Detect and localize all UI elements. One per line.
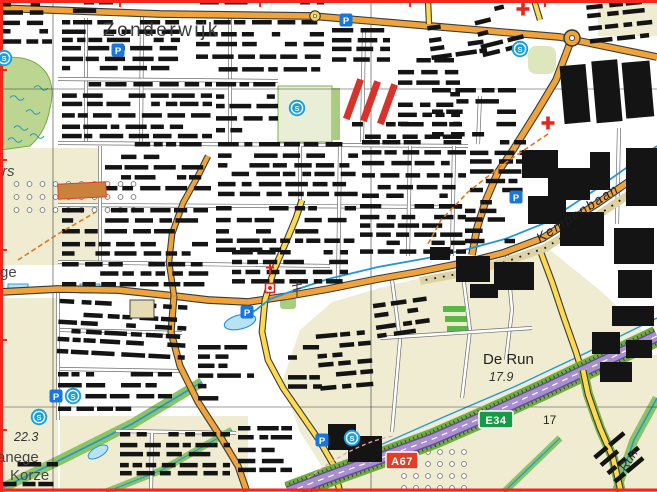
parking-icon: P — [112, 44, 125, 57]
svg-text:S: S — [70, 392, 75, 401]
a-road-number: A67 — [391, 456, 413, 468]
e-road-shield: E34 — [479, 411, 513, 428]
town-label: Zonderwijk — [103, 20, 220, 41]
svg-text:S: S — [517, 45, 522, 54]
parking-icon: P — [340, 14, 353, 27]
parking-icon: P — [510, 191, 523, 204]
svg-text:S: S — [36, 413, 41, 422]
svg-text:P: P — [343, 16, 350, 27]
parking-icon: P — [50, 390, 63, 403]
svg-text:S: S — [294, 104, 299, 113]
partial-label-ge: ge — [0, 264, 17, 281]
svg-text:S: S — [1, 54, 6, 63]
a-road-shield: A67 — [386, 452, 418, 469]
sport-icon: S — [289, 100, 305, 116]
topographic-map-canvas[interactable]: PPPPPPSSSSSS E34 A67 Zonderwijk Kempenba… — [0, 0, 657, 492]
parcel-label: 17 — [543, 413, 557, 427]
partial-label-manege: anege — [0, 449, 39, 466]
elevation-sw: 22.3 — [13, 430, 38, 444]
partial-label-korze: Korze — [10, 467, 49, 484]
greenhouse-buildings — [343, 78, 398, 125]
svg-text:P: P — [244, 308, 251, 319]
svg-text:P: P — [115, 46, 122, 57]
roundabout — [564, 30, 580, 46]
first-aid-cross-icon — [517, 3, 530, 16]
parking-icon: P — [316, 434, 329, 447]
sport-icon: S — [344, 430, 360, 446]
svg-text:S: S — [349, 434, 354, 443]
svg-text:P: P — [319, 436, 326, 447]
sport-icon: S — [65, 388, 81, 404]
first-aid-cross-icon — [542, 117, 555, 130]
partial-label-rs: rs — [2, 163, 15, 180]
sport-icon: S — [31, 409, 47, 425]
parking-icon: P — [241, 306, 254, 319]
sport-icon: S — [512, 41, 528, 57]
elevation-de-run: 17.9 — [489, 370, 513, 384]
map-image: PPPPPPSSSSSS E34 A67 Zonderwijk Kempenba… — [0, 0, 657, 492]
svg-text:P: P — [53, 392, 60, 403]
area-label-de-run: De Run — [483, 351, 534, 368]
church-icon — [266, 284, 275, 293]
mini-roundabout — [310, 11, 320, 21]
svg-text:P: P — [513, 193, 520, 204]
e-road-number: E34 — [485, 415, 506, 427]
